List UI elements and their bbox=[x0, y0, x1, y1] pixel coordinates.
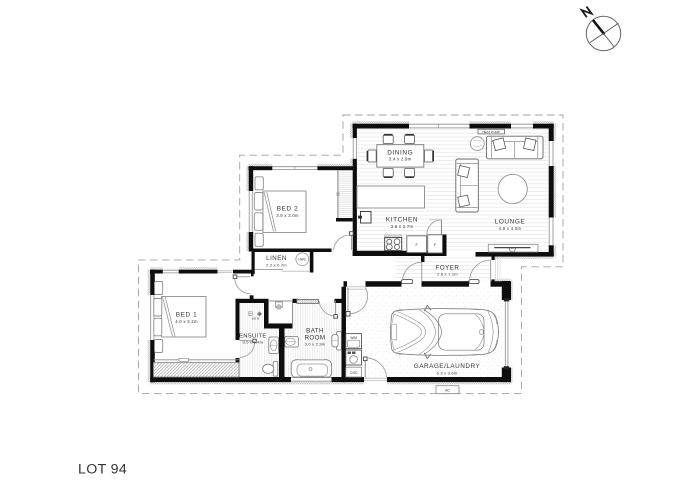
svg-text:3.9 x 3.0m: 3.9 x 3.0m bbox=[276, 213, 299, 218]
svg-text:6.3 x 3.6m: 6.3 x 3.6m bbox=[437, 371, 458, 376]
svg-text:2.2 x 0.7m: 2.2 x 0.7m bbox=[266, 262, 287, 267]
svg-text:AC: AC bbox=[445, 388, 450, 392]
svg-text:DINING: DINING bbox=[387, 150, 413, 157]
svg-text:GARAGE/LAUNDRY: GARAGE/LAUNDRY bbox=[414, 363, 481, 370]
svg-text:LINEN: LINEN bbox=[266, 255, 287, 262]
svg-text:KITCHEN: KITCHEN bbox=[386, 217, 418, 224]
svg-text:HWC: HWC bbox=[298, 257, 306, 261]
svg-text:3.0 x 2.3m: 3.0 x 2.3m bbox=[305, 341, 326, 346]
svg-text:600 W: 600 W bbox=[252, 317, 260, 321]
svg-text:2.6 x 1.1m: 2.6 x 1.1m bbox=[437, 272, 458, 277]
svg-text:W/M: W/M bbox=[350, 336, 357, 340]
svg-text:4.0 x 3.2m: 4.0 x 3.2m bbox=[175, 319, 198, 324]
svg-text:3.0 x 1.4m: 3.0 x 1.4m bbox=[242, 340, 263, 345]
svg-text:LOT 94: LOT 94 bbox=[78, 462, 127, 478]
svg-text:C/SD: C/SD bbox=[350, 371, 358, 375]
svg-text:3.4 x 2.9m: 3.4 x 2.9m bbox=[389, 157, 412, 162]
svg-text:LOUNGE: LOUNGE bbox=[495, 219, 526, 226]
svg-text:ROOM: ROOM bbox=[305, 334, 326, 341]
svg-text:BED 2: BED 2 bbox=[277, 206, 298, 213]
svg-text:HEAT PUMP: HEAT PUMP bbox=[482, 130, 500, 134]
svg-text:4.8 x 4.0m: 4.8 x 4.0m bbox=[499, 226, 522, 231]
svg-text:BED 1: BED 1 bbox=[176, 312, 197, 319]
svg-text:FOYER: FOYER bbox=[436, 265, 460, 272]
svg-text:3.8 x 2.7m: 3.8 x 2.7m bbox=[391, 224, 414, 229]
